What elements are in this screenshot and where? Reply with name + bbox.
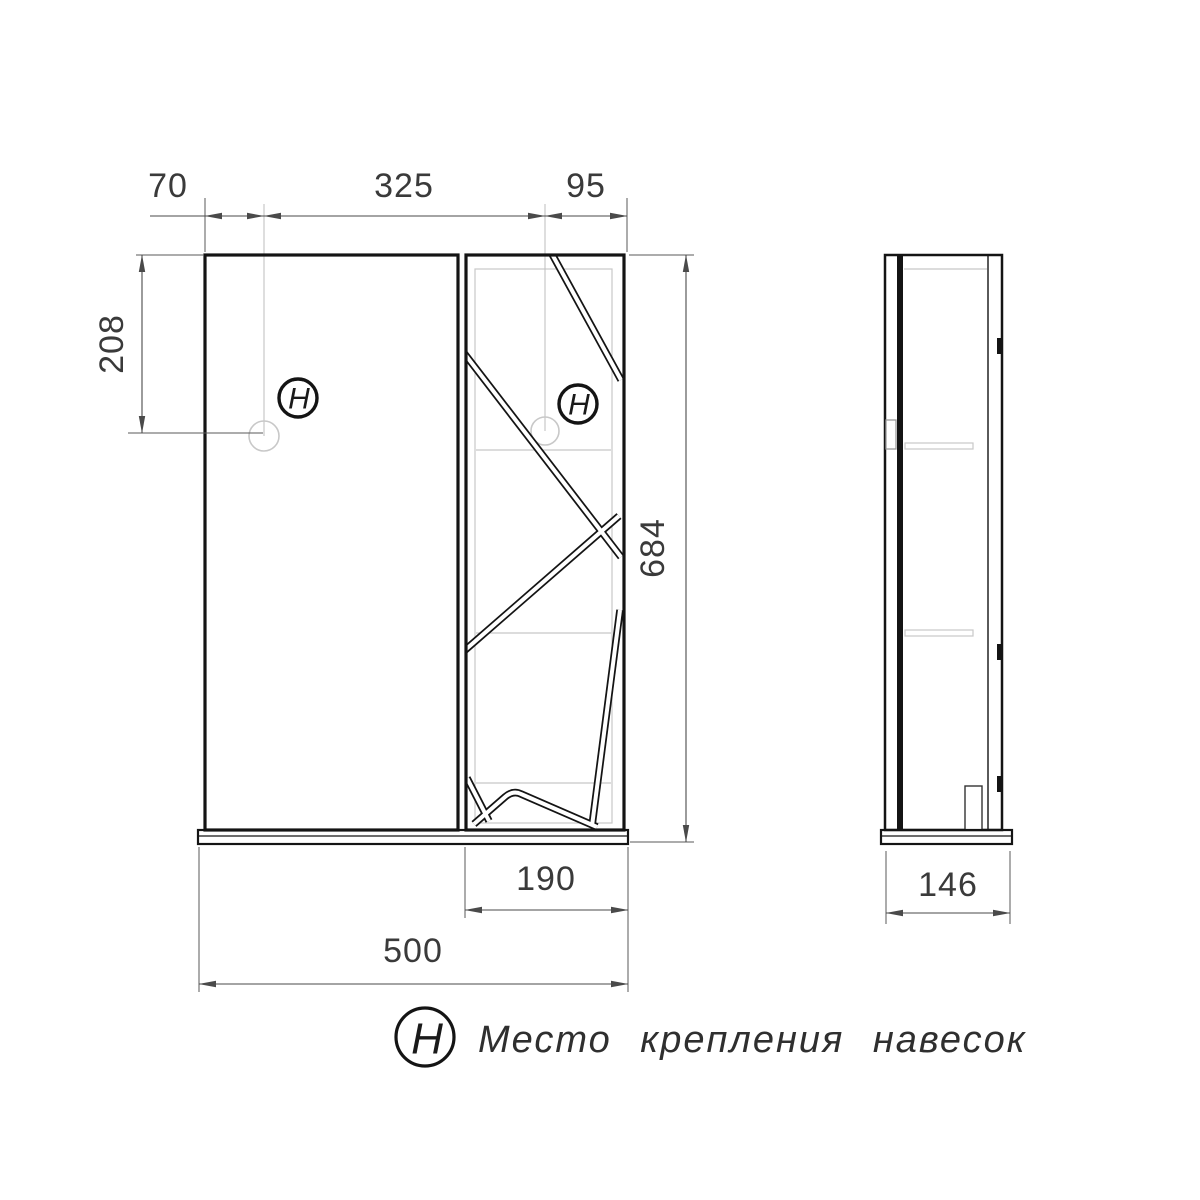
side-mirror-edge xyxy=(897,256,903,829)
legend-text: Место крепления навесок xyxy=(478,1019,1027,1061)
hinge-mark-top xyxy=(997,338,1003,354)
side-view xyxy=(881,255,1012,844)
bottom-shelf-front xyxy=(198,830,628,844)
dim-label-684: 684 xyxy=(634,518,672,578)
technical-drawing-page: H H xyxy=(0,0,1200,1200)
legend: H Место крепления навесок xyxy=(396,1008,1027,1066)
door-inner-lines xyxy=(475,269,612,823)
side-shelf-line-lower xyxy=(905,630,973,636)
hook-marker-mirror: H xyxy=(279,379,317,417)
drawing-svg: H H xyxy=(0,0,1200,1200)
mirror-panel xyxy=(205,255,458,830)
side-handle xyxy=(886,420,896,449)
dim-label-500: 500 xyxy=(383,932,443,970)
hinge-mark-middle xyxy=(997,644,1003,660)
hook-marker-door-letter: H xyxy=(568,389,590,422)
dim-label-70: 70 xyxy=(148,167,188,205)
dim-label-208: 208 xyxy=(93,314,131,374)
dim-label-190: 190 xyxy=(516,860,576,898)
side-shelf-line-upper xyxy=(905,443,973,449)
bottom-shelf-side xyxy=(881,830,1012,844)
dim-label-95: 95 xyxy=(566,167,606,205)
hook-marker-door: H xyxy=(559,385,597,423)
door-decor-strips xyxy=(464,254,621,827)
legend-hook-letter: H xyxy=(411,1015,443,1064)
front-view: H H xyxy=(198,204,628,844)
hinge-mark-bottom xyxy=(997,776,1003,792)
hook-marker-mirror-letter: H xyxy=(288,383,310,416)
dim-label-325: 325 xyxy=(374,167,434,205)
dim-label-146: 146 xyxy=(918,866,978,904)
side-bottom-detail xyxy=(965,786,982,830)
